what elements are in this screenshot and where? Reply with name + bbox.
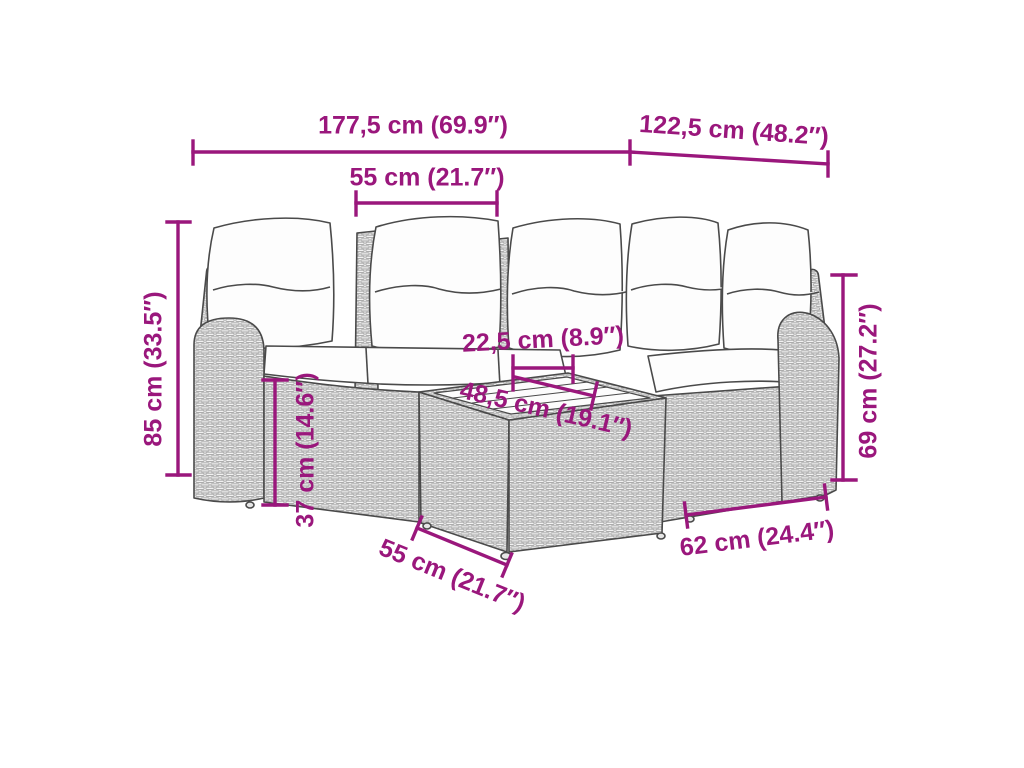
right-armrest — [778, 312, 839, 502]
dim-line-seat-width — [356, 192, 497, 215]
dim-line-total-height — [167, 222, 190, 475]
dim-label-total-height: 85 cm (33.5″) — [142, 291, 167, 446]
foot — [246, 502, 254, 508]
dim-label-seat-height: 37 cm (14.6″) — [294, 372, 319, 527]
back-cushion-4 — [626, 217, 721, 350]
dim-label-backrest-height: 69 cm (27.2″) — [857, 303, 882, 458]
dim-line-total-width — [193, 141, 630, 164]
corner-module-body — [652, 386, 790, 522]
seat-base-left — [264, 376, 419, 522]
product-dimension-diagram: 177,5 cm (69.9″) 122,5 cm (48.2″) 55 cm … — [0, 0, 1024, 768]
dim-line-right-depth — [630, 152, 828, 176]
left-armrest — [194, 318, 264, 502]
dim-label-seat-width: 55 cm (21.7″) — [349, 166, 504, 191]
dim-label-total-width: 177,5 cm (69.9″) — [318, 114, 508, 139]
